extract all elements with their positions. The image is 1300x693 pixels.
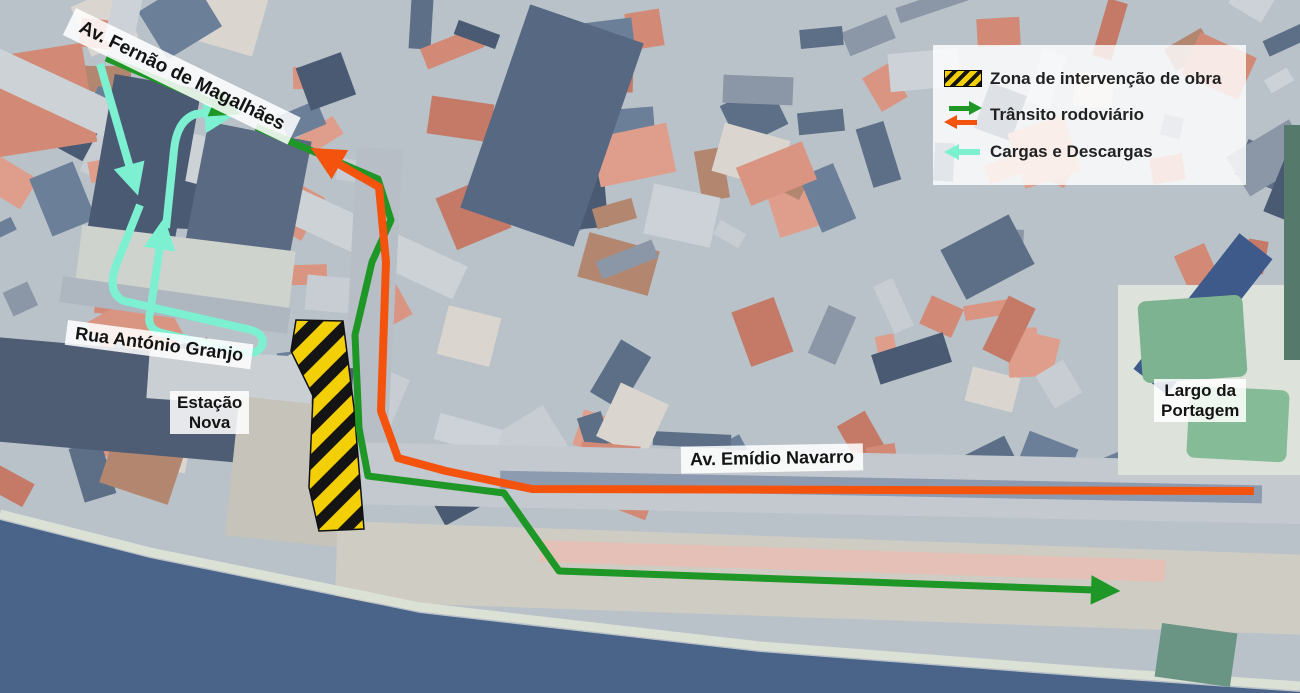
legend-item-road-traffic: Trânsito rodoviário <box>933 102 1246 129</box>
legend-label: Cargas e Descargas <box>990 142 1153 162</box>
route-cargas-exit <box>166 113 206 228</box>
route-transito-orange <box>337 163 1254 491</box>
legend-item-loading-unloading: Cargas e Descargas <box>933 142 1246 162</box>
legend-label: Trânsito rodoviário <box>990 105 1144 125</box>
legend: Zona de intervenção de obra Trânsito rod… <box>933 45 1246 185</box>
hatch-swatch-icon <box>944 70 982 87</box>
pontoon <box>1155 623 1238 687</box>
label-estacao-nova: Estação Nova <box>170 391 249 434</box>
legend-item-construction-zone: Zona de intervenção de obra <box>933 69 1246 89</box>
river-water <box>0 520 1300 693</box>
route-cargas-outbound <box>100 64 130 168</box>
label-largo-da-portagem: Largo da Portagem <box>1154 379 1246 422</box>
green-arrow-right-icon <box>949 102 990 115</box>
cyan-arrow-left-icon <box>944 145 990 158</box>
label-av-emidio-navarro: Av. Emídio Navarro <box>681 443 864 473</box>
construction-detour-map: Av. Fernão de Magalhães Rua António Gran… <box>0 0 1300 693</box>
legend-label: Zona de intervenção de obra <box>990 69 1221 89</box>
orange-arrow-left-icon <box>944 116 990 129</box>
